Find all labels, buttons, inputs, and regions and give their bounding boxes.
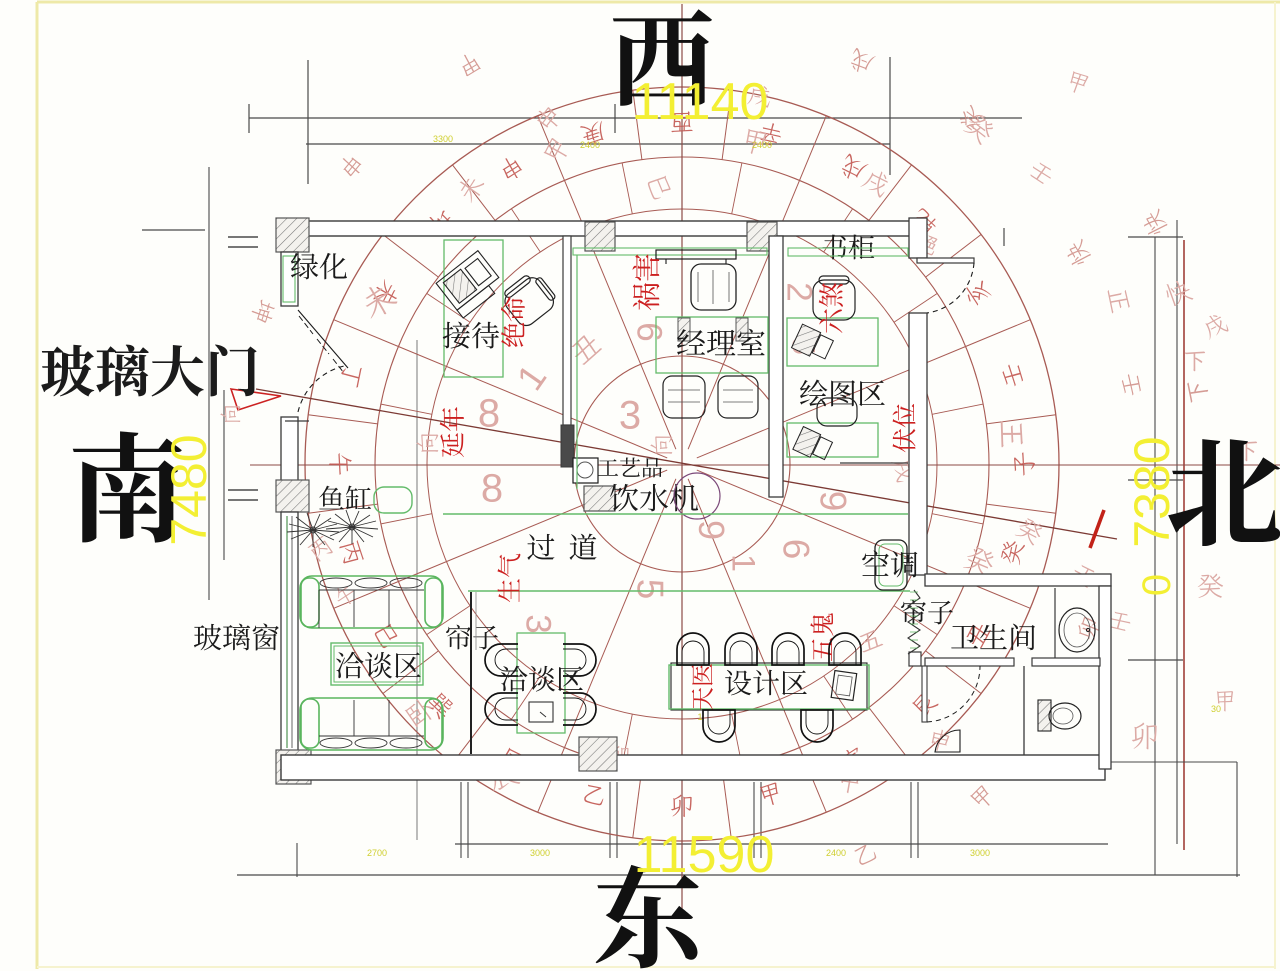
svg-text:0: 0 <box>1135 574 1179 596</box>
svg-text:11140: 11140 <box>632 73 769 131</box>
svg-text:3: 3 <box>518 614 557 633</box>
svg-text:6: 6 <box>629 322 668 341</box>
svg-text:2400: 2400 <box>752 140 772 150</box>
svg-text:9: 9 <box>813 491 854 512</box>
svg-text:3300: 3300 <box>433 134 453 144</box>
svg-text:1: 1 <box>697 712 702 722</box>
svg-text:6: 6 <box>776 539 817 560</box>
svg-text:1: 1 <box>726 554 762 572</box>
svg-text:3: 3 <box>619 393 641 437</box>
svg-text:30: 30 <box>1211 704 1221 714</box>
svg-text:2400: 2400 <box>826 848 846 858</box>
svg-text:11590: 11590 <box>634 826 775 884</box>
svg-text:3000: 3000 <box>530 848 550 858</box>
svg-text:8: 8 <box>481 466 503 510</box>
svg-text:5: 5 <box>630 579 671 600</box>
svg-text:7480: 7480 <box>161 434 217 545</box>
svg-text:3000: 3000 <box>970 848 990 858</box>
svg-text:2400: 2400 <box>580 140 600 150</box>
svg-text:2700: 2700 <box>367 848 387 858</box>
svg-text:9: 9 <box>691 520 732 540</box>
svg-text:7380: 7380 <box>1124 436 1180 547</box>
svg-text:8: 8 <box>478 391 500 435</box>
